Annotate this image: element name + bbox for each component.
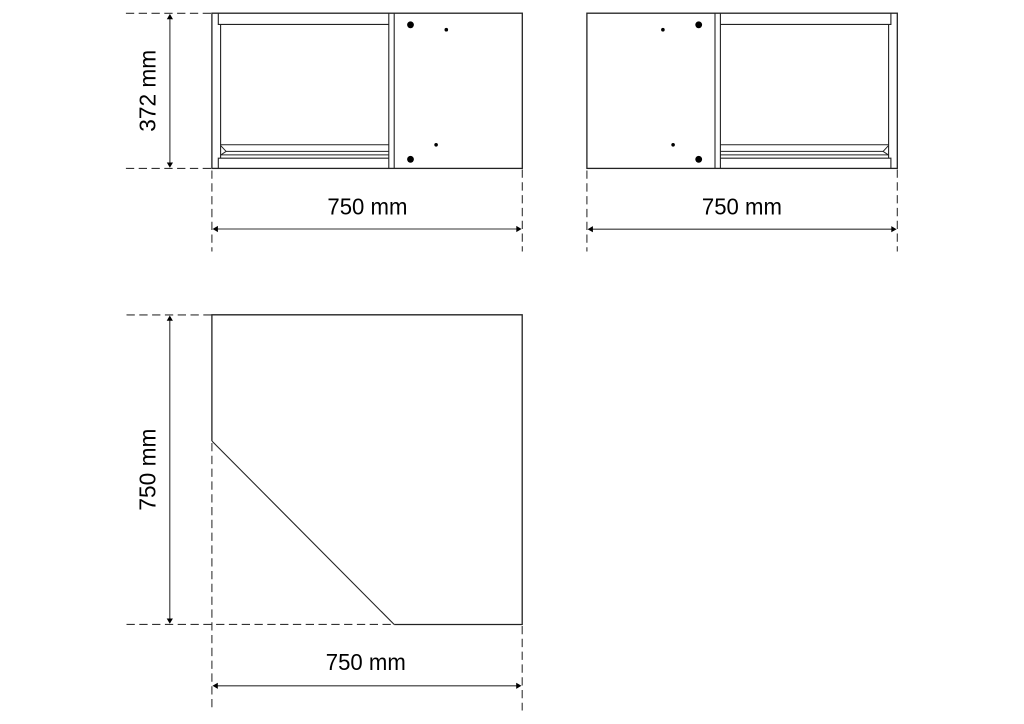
svg-text:372 mm: 372 mm: [134, 50, 160, 132]
svg-text:750 mm: 750 mm: [326, 649, 406, 675]
svg-text:750 mm: 750 mm: [134, 429, 160, 511]
svg-text:750 mm: 750 mm: [702, 193, 782, 219]
svg-text:750 mm: 750 mm: [327, 193, 407, 219]
